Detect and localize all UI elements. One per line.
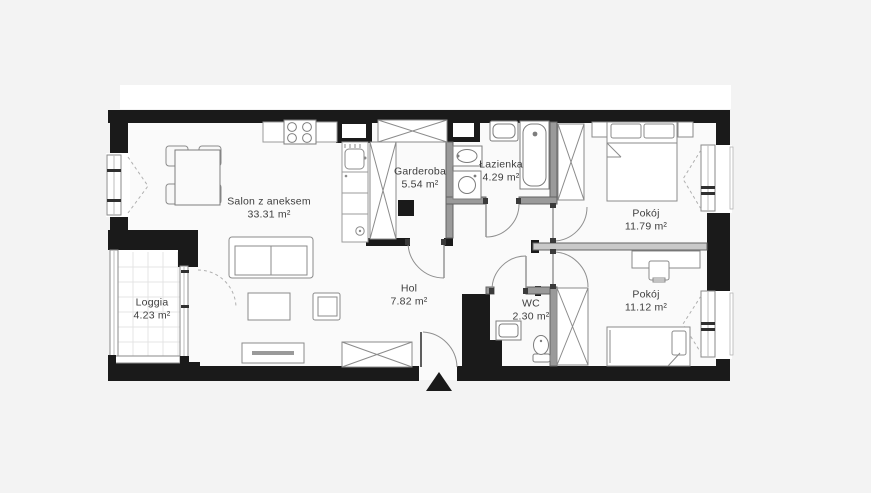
room-area: 33.31 m² bbox=[227, 208, 311, 221]
room-label-lazienka: Łazienka 4.29 m² bbox=[479, 159, 523, 184]
room-area: 7.82 m² bbox=[391, 295, 428, 308]
coffee-table bbox=[248, 293, 290, 320]
room-area: 11.79 m² bbox=[625, 220, 667, 233]
room-area: 5.54 m² bbox=[394, 178, 446, 191]
wardrobe-garderoba-top bbox=[378, 120, 447, 142]
room-name: Salon z aneksem bbox=[227, 196, 311, 209]
room-name: Garderoba bbox=[394, 166, 446, 179]
room-label-garderoba: Garderoba 5.54 m² bbox=[394, 166, 446, 191]
bathtub bbox=[520, 121, 549, 189]
garderoba-shaft bbox=[398, 200, 414, 216]
room-name: Pokój bbox=[625, 208, 667, 221]
bathroom-sink-top bbox=[490, 121, 518, 141]
room-label-hol: Hol 7.82 m² bbox=[391, 283, 428, 308]
room-area: 4.29 m² bbox=[479, 171, 523, 184]
room-label-pokoj-1: Pokój 11.79 m² bbox=[625, 208, 667, 233]
nightstand-right bbox=[678, 122, 693, 137]
room-area: 4.23 m² bbox=[134, 309, 171, 322]
nightstand-left bbox=[592, 122, 607, 137]
room-name: Łazienka bbox=[479, 159, 523, 172]
room-name: Loggia bbox=[134, 297, 171, 310]
desk-chair bbox=[649, 261, 669, 282]
floorplan-drawing bbox=[0, 0, 871, 493]
wc-sink bbox=[496, 321, 521, 340]
room-label-pokoj-2: Pokój 11.12 m² bbox=[625, 289, 667, 314]
washing-machine bbox=[453, 171, 481, 199]
hall-closet bbox=[342, 342, 412, 367]
floorplan-canvas: Salon z aneksem 33.31 m² Garderoba 5.54 … bbox=[0, 0, 871, 493]
room-label-salon: Salon z aneksem 33.31 m² bbox=[227, 196, 311, 221]
wardrobe-room1 bbox=[558, 124, 584, 200]
single-bed bbox=[607, 327, 690, 366]
armchair bbox=[313, 293, 340, 320]
wardrobe-garderoba-left bbox=[370, 142, 396, 239]
sofa bbox=[229, 237, 313, 278]
stove-icon bbox=[284, 120, 316, 144]
room-area: 2.30 m² bbox=[513, 310, 550, 323]
room-area: 11.12 m² bbox=[625, 301, 667, 314]
tv-stand bbox=[242, 343, 304, 363]
room-name: Pokój bbox=[625, 289, 667, 302]
bathroom-sink-wall bbox=[453, 146, 482, 166]
wardrobe-room2 bbox=[557, 288, 588, 365]
room-name: Hol bbox=[391, 283, 428, 296]
room-name: WC bbox=[513, 298, 550, 311]
kitchen-cabinets bbox=[342, 142, 368, 242]
room-label-loggia: Loggia 4.23 m² bbox=[134, 297, 171, 322]
room-label-wc: WC 2.30 m² bbox=[513, 298, 550, 323]
toilet bbox=[533, 336, 550, 363]
double-bed bbox=[607, 122, 677, 201]
